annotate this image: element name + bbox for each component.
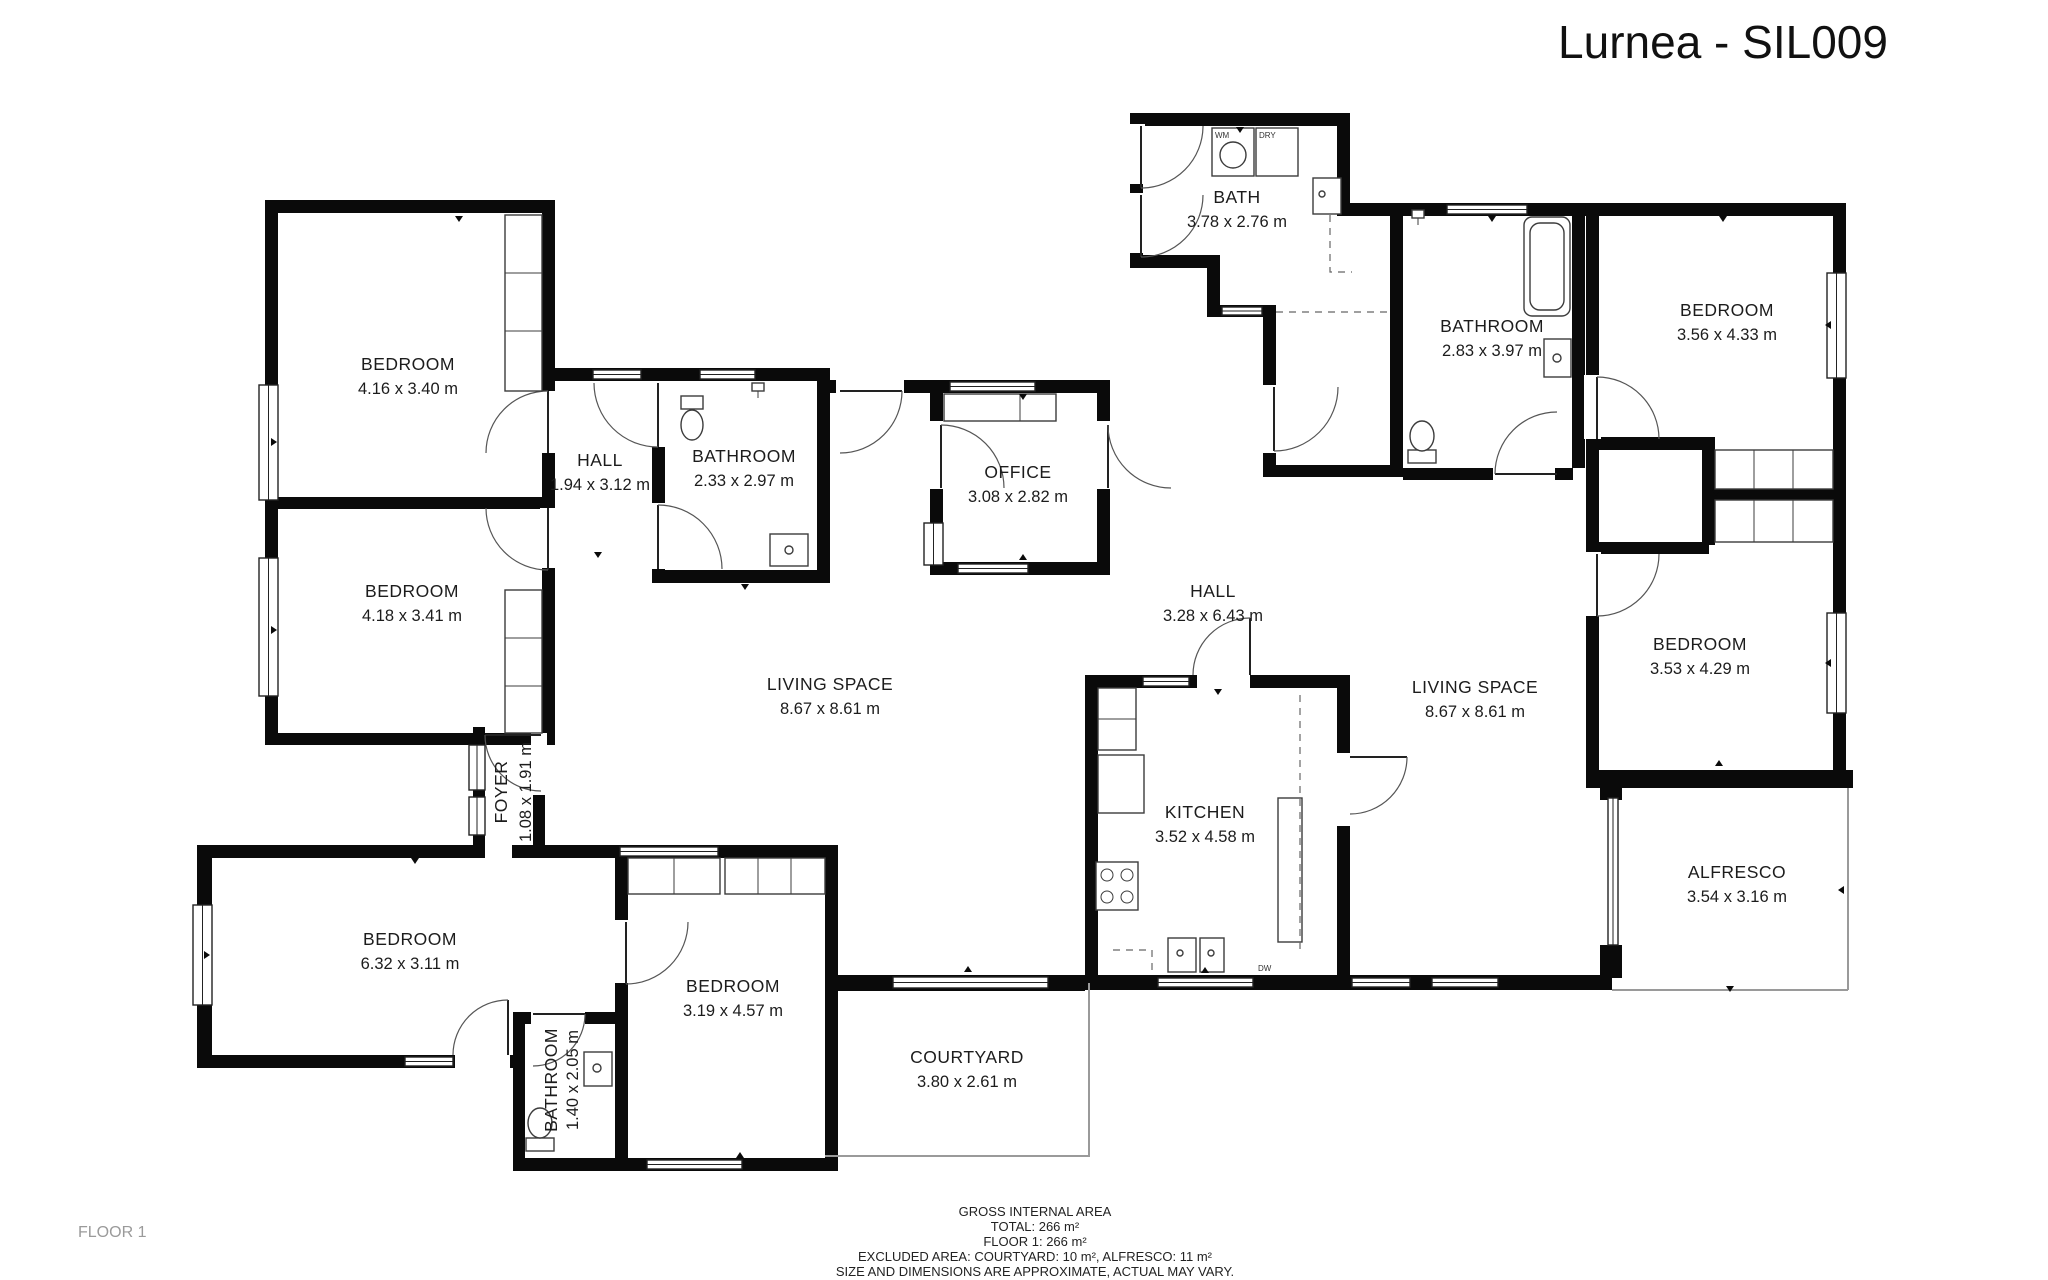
window xyxy=(1432,978,1498,987)
shower-head-icon xyxy=(752,383,764,398)
door-bedroom-nw1 xyxy=(486,391,548,453)
footer-line-1: GROSS INTERNAL AREA xyxy=(959,1204,1112,1219)
label-bedroom-south-name: BEDROOM xyxy=(686,976,780,996)
window xyxy=(1222,307,1262,315)
window xyxy=(469,797,485,835)
footer-line-2: TOTAL: 266 m² xyxy=(991,1219,1080,1234)
closet xyxy=(628,858,720,894)
window xyxy=(1447,205,1527,214)
label-bedroom-ne-name: BEDROOM xyxy=(1680,300,1774,320)
window xyxy=(620,847,718,856)
dryer-label: DRY xyxy=(1259,131,1276,140)
label-bedroom-nw2-dims: 4.18 x 3.41 m xyxy=(362,607,462,625)
label-bathroom-south-name: BATHROOM xyxy=(541,1028,561,1132)
washer-label: WM xyxy=(1215,131,1230,140)
floor-label: FLOOR 1 xyxy=(78,1224,147,1241)
footer-line-4: EXCLUDED AREA: COURTYARD: 10 m², ALFRESC… xyxy=(858,1249,1213,1264)
closet xyxy=(725,858,825,894)
door-bedroom-east xyxy=(1597,554,1659,616)
bathtub xyxy=(1524,217,1570,316)
label-office-dims: 3.08 x 2.82 m xyxy=(968,488,1068,506)
window xyxy=(593,370,641,379)
dishwasher-label: DW xyxy=(1258,964,1272,973)
label-bath-dims: 3.78 x 2.76 m xyxy=(1187,213,1287,231)
label-alfresco-dims: 3.54 x 3.16 m xyxy=(1687,888,1787,906)
label-office-name: OFFICE xyxy=(984,462,1051,482)
floorplan-page: BEDROOM 4.16 x 3.40 m BEDROOM 4.18 x 3.4… xyxy=(0,0,2048,1280)
label-bedroom-east-name: BEDROOM xyxy=(1653,634,1747,654)
label-hall-main-dims: 3.28 x 6.43 m xyxy=(1163,607,1263,625)
label-bathroom-ne-name: BATHROOM xyxy=(1440,316,1544,336)
window xyxy=(950,382,1035,391)
label-bathroom-ne-dims: 2.83 x 3.97 m xyxy=(1442,342,1542,360)
door-linen xyxy=(1274,387,1338,451)
window xyxy=(647,1160,742,1169)
window xyxy=(469,745,485,790)
footer-line-5: SIZE AND DIMENSIONS ARE APPROXIMATE, ACT… xyxy=(836,1264,1234,1279)
sink xyxy=(1544,339,1571,377)
open-area-boundaries xyxy=(825,788,1848,1156)
label-living-east-dims: 8.67 x 8.61 m xyxy=(1425,703,1525,721)
label-hall-west-name: HALL xyxy=(577,450,623,470)
label-alfresco-name: ALFRESCO xyxy=(1688,862,1786,882)
window xyxy=(405,1057,453,1066)
door-bath-1 xyxy=(1141,126,1203,188)
window xyxy=(1352,978,1410,987)
label-bedroom-nw2-name: BEDROOM xyxy=(365,581,459,601)
kitchen-sink xyxy=(1168,938,1224,972)
toilet xyxy=(681,396,703,440)
window xyxy=(259,558,278,696)
sink xyxy=(770,534,808,566)
door-hall-west xyxy=(594,383,658,447)
sink xyxy=(584,1052,612,1086)
label-bedroom-east-dims: 3.53 x 4.29 m xyxy=(1650,660,1750,678)
door-bathroom-ne xyxy=(1495,412,1557,474)
label-living-west-dims: 8.67 x 8.61 m xyxy=(780,700,880,718)
label-foyer-dims: 1.08 x 1.91 m xyxy=(517,742,535,842)
toilet xyxy=(1408,421,1436,463)
door-kitchen xyxy=(1193,618,1250,675)
label-bedroom-nw1-name: BEDROOM xyxy=(361,354,455,374)
sliding-door xyxy=(1608,798,1618,945)
door-bedroom-ne xyxy=(1597,377,1659,439)
label-courtyard-name: COURTYARD xyxy=(910,1047,1024,1067)
label-bedroom-sw-name: BEDROOM xyxy=(363,929,457,949)
island-bench xyxy=(1278,798,1302,942)
door-bedroom-sw xyxy=(453,1000,508,1055)
label-foyer-name: FOYER xyxy=(491,761,511,824)
label-living-east-name: LIVING SPACE xyxy=(1412,677,1538,697)
sink xyxy=(1313,178,1341,214)
window xyxy=(1143,677,1189,686)
door-entry-north xyxy=(840,391,902,453)
door-office-right xyxy=(1108,425,1171,488)
sliding-door xyxy=(893,977,1048,988)
shower-head-icon xyxy=(1412,210,1424,225)
fridge xyxy=(1098,688,1136,750)
label-bathroom-west-dims: 2.33 x 2.97 m xyxy=(694,472,794,490)
label-kitchen-name: KITCHEN xyxy=(1165,802,1245,822)
walls xyxy=(197,113,1853,1171)
wardrobe xyxy=(505,215,542,391)
label-bathroom-west-name: BATHROOM xyxy=(692,446,796,466)
page-title: Lurnea - SIL009 xyxy=(1558,16,1888,68)
desk xyxy=(944,394,1056,421)
counter xyxy=(1098,755,1144,813)
door-bedroom-south xyxy=(626,922,688,984)
door-bedroom-nw2 xyxy=(486,508,548,570)
label-kitchen-dims: 3.52 x 4.58 m xyxy=(1155,828,1255,846)
door-bathroom-west xyxy=(658,505,722,569)
label-hall-main-name: HALL xyxy=(1190,581,1236,601)
stove xyxy=(1096,862,1138,910)
label-bath-name: BATH xyxy=(1213,187,1260,207)
floor-plan-svg: BEDROOM 4.16 x 3.40 m BEDROOM 4.18 x 3.4… xyxy=(0,0,2048,1280)
footer-notes: GROSS INTERNAL AREA TOTAL: 266 m² FLOOR … xyxy=(836,1204,1234,1279)
footer-line-3: FLOOR 1: 266 m² xyxy=(983,1234,1087,1249)
label-bedroom-ne-dims: 3.56 x 4.33 m xyxy=(1677,326,1777,344)
wardrobe xyxy=(505,590,542,733)
label-bathroom-south-dims: 1.40 x 2.05 m xyxy=(564,1030,582,1130)
fixtures xyxy=(505,128,1833,1151)
door-kitchen-east xyxy=(1350,757,1407,814)
appliance-labels: WM DRY DW xyxy=(1215,131,1276,973)
label-living-west-name: LIVING SPACE xyxy=(767,674,893,694)
window xyxy=(700,370,755,379)
label-bedroom-sw-dims: 6.32 x 3.11 m xyxy=(361,955,460,973)
doors xyxy=(453,126,1659,1066)
window xyxy=(1158,978,1253,987)
label-bedroom-nw1-dims: 4.16 x 3.40 m xyxy=(358,380,458,398)
label-courtyard-dims: 3.80 x 2.61 m xyxy=(917,1073,1017,1091)
label-bedroom-south-dims: 3.19 x 4.57 m xyxy=(683,1002,783,1020)
label-hall-west-dims: 1.94 x 3.12 m xyxy=(550,476,650,494)
window xyxy=(958,564,1028,573)
window xyxy=(924,523,943,565)
